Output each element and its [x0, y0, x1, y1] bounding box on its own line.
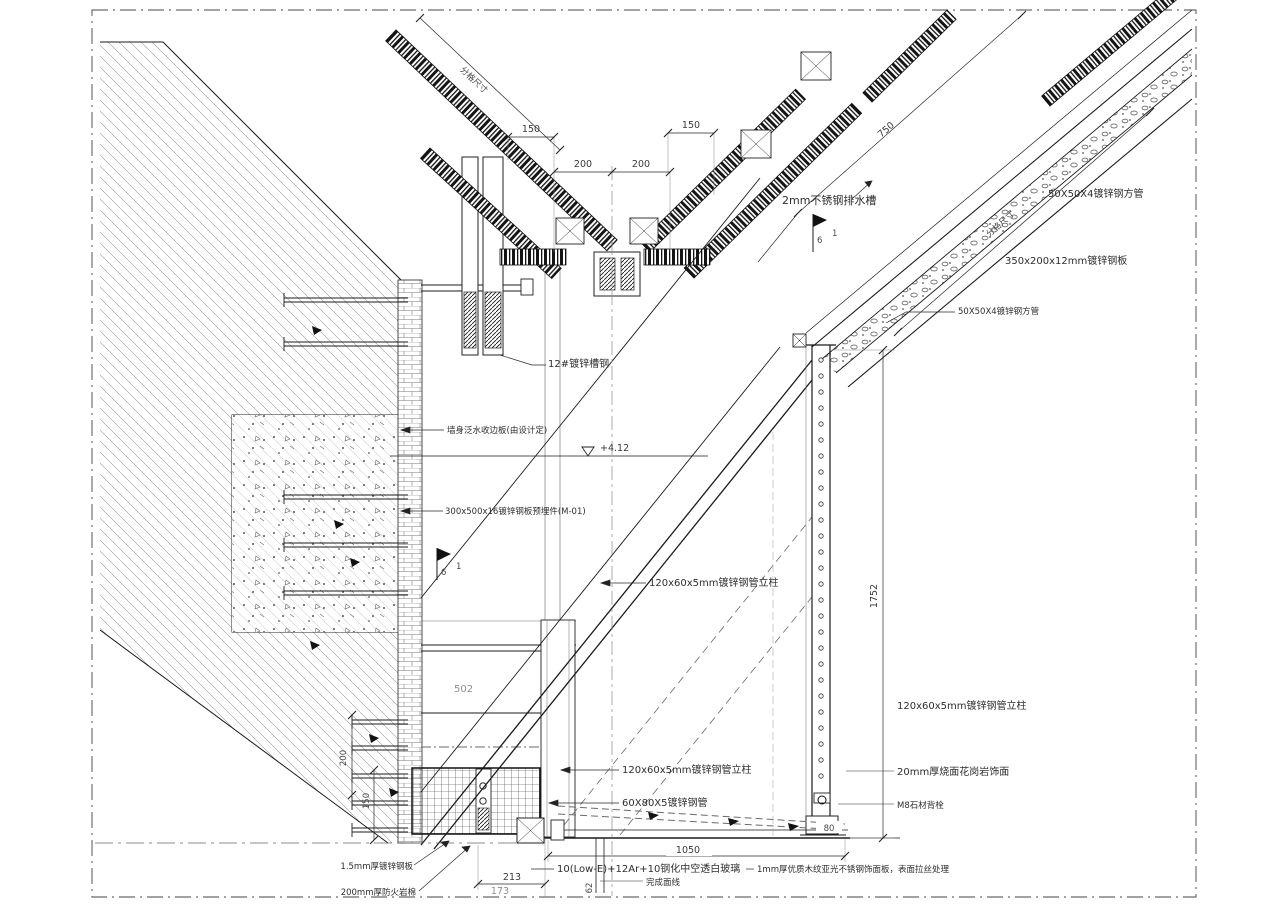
level-value: +4.12	[600, 443, 629, 454]
label-square-tube-top: 50X50X4镀锌钢方管	[1048, 187, 1144, 200]
weld-count: 1	[832, 229, 837, 239]
bracket-clips	[556, 52, 831, 244]
dim-200-a: 200	[574, 159, 592, 170]
dim-200-b: 200	[632, 159, 650, 170]
label-finish-line: 完成面线	[646, 877, 681, 888]
label-gutter: 2mm不锈钢排水槽	[782, 193, 876, 207]
dim-200-wall: 200	[339, 750, 349, 766]
label-galv-sheet: 1.5mm厚镀锌钢板	[340, 861, 413, 872]
weld-size: 6	[817, 236, 822, 246]
detail-drawing-canvas: 150 200 200 150 750 分格尺寸 分格尺寸 1752 200 1…	[0, 0, 1280, 905]
weld-flag-top: 6 1	[813, 214, 837, 252]
label-granite-finish: 20mm厚烧面花岗岩饰面	[897, 765, 1009, 778]
label-channel-12: 12#镀锌槽钢	[548, 357, 609, 370]
label-member-tag: 502	[454, 684, 473, 695]
weld-count: 1	[456, 562, 461, 572]
label-column-mid: 120x60x5mm镀锌钢管立柱	[649, 576, 779, 589]
label-stone-bolt: M8石材背栓	[897, 800, 944, 811]
dim-750-roof: 750	[876, 120, 897, 140]
cad-detail-sheet: 150 200 200 150 750 分格尺寸 分格尺寸 1752 200 1…	[0, 0, 1280, 905]
label-tube-60x80: 60X80X5镀锌钢管	[622, 796, 708, 809]
dim-150-wall: 150	[362, 793, 372, 809]
label-stainless-panel: 1mm厚优质木纹亚光不锈钢饰面板，表面拉丝处理	[757, 864, 949, 875]
valley-gutter-box	[594, 252, 640, 296]
level-mark: +4.12	[390, 443, 708, 456]
flag-icon	[437, 548, 451, 561]
flag-icon	[813, 214, 827, 227]
label-wall-flashing: 墙身泛水收边板(由设计定)	[447, 425, 547, 436]
grid-size-label-left: 分格尺寸	[458, 65, 491, 97]
dim-150-right: 150	[682, 120, 700, 131]
dim-62: 62	[585, 883, 595, 894]
dim-80: 80	[824, 824, 835, 834]
dim-213: 213	[503, 872, 521, 883]
label-rockwool: 200mm厚防火岩棉	[341, 887, 416, 898]
dim-1752-height: 1752	[869, 584, 880, 608]
label-embed-plate: 300x500x16镀锌钢板预埋件(M-01)	[445, 506, 586, 517]
level-triangle-icon	[582, 447, 594, 456]
weld-size: 6	[441, 568, 446, 578]
wall-insulation-strip	[398, 280, 422, 843]
label-column-right: 120x60x5mm镀锌钢管立柱	[897, 699, 1027, 712]
label-square-tube-mid: 50X50X4镀锌钢方管	[958, 306, 1039, 317]
label-glass: 10(Low-E)+12Ar+10钢化中空透白玻璃	[557, 862, 740, 875]
dim-150-left: 150	[522, 124, 540, 135]
concrete-wall-section	[100, 42, 422, 843]
curtain-wall-mullion	[800, 345, 846, 835]
label-column-bottom: 120x60x5mm镀锌钢管立柱	[622, 763, 752, 776]
dim-1050-floor: 1050	[676, 845, 700, 856]
dim-173: 173	[491, 886, 509, 897]
label-steel-plate: 350x200x12mm镀锌钢板	[1005, 254, 1127, 267]
